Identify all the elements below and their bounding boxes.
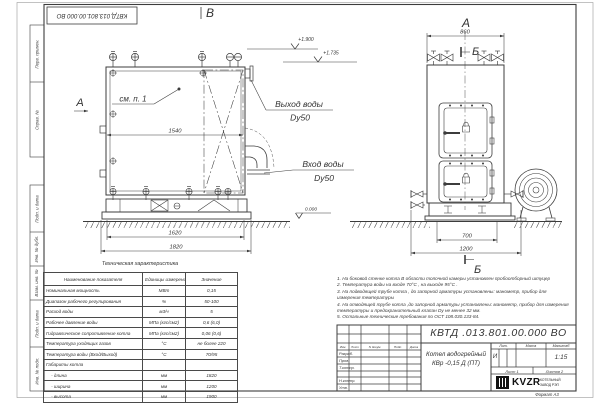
cut-label-bottom: Б: [474, 264, 481, 276]
note-line: 1. На боковой стенке котла В области топ…: [337, 276, 571, 282]
inlet-dn: Dy50: [314, 173, 334, 183]
role-utv: Утв.: [339, 385, 379, 390]
outlet-label: Выход воды: [275, 99, 324, 109]
role-prov: Пров.: [339, 358, 379, 363]
lit-value: И: [491, 354, 499, 360]
tech-table-title: Техническая характеристика: [43, 261, 237, 267]
tech-table-cell: - ширина: [44, 381, 143, 392]
inlet-label: Вход воды: [302, 159, 344, 169]
tech-table-cell: 1820: [186, 370, 238, 381]
col-mass-header: Масса: [516, 344, 546, 348]
rev-header-ndokum: N докум.: [361, 345, 389, 349]
title-block-doc-number: КВТД .013.801.00.000 ВО: [421, 327, 576, 339]
tech-table-cell: 0,06 (0,6): [186, 328, 238, 339]
tech-table-row: Габариты котла: [44, 360, 238, 371]
notes-list: 1. На боковой стенке котла В области топ…: [337, 276, 571, 321]
product-line1: Котел водогрейный: [421, 351, 491, 360]
rev-header-podp: Подп.: [389, 345, 407, 349]
elevation-zero: 0.000: [305, 207, 317, 213]
role-razrab: Разраб.: [339, 351, 379, 356]
tech-table-cell: [143, 360, 186, 371]
tech-table-cell: 1900: [186, 391, 238, 402]
tech-table-header-cell: Единицы измерения: [143, 273, 186, 286]
side-view-label: А: [461, 16, 470, 30]
rev-header-list: Лист: [349, 345, 361, 349]
tech-table-row: Температура уходящих газов°Сне более 220: [44, 338, 238, 349]
tech-table-cell: Температура уходящих газов: [44, 338, 143, 349]
tech-table-cell: мм: [143, 381, 186, 392]
logo-emblem: [496, 376, 509, 389]
tech-table-row: Номинальная мощностьМВт0,15: [44, 286, 238, 297]
outlet-dn: Dy50: [290, 113, 310, 123]
tech-table-cell: м3/ч: [143, 307, 186, 318]
elevation-mid: +1.735: [323, 51, 339, 57]
tech-table-cell: [186, 360, 238, 371]
tech-table-cell: Габариты котла: [44, 360, 143, 371]
tech-table-row: - высотамм1900: [44, 391, 238, 402]
drawing-labels: В А см. п. 1 1540 1620 1820 +1.900 +1.73…: [75, 6, 481, 276]
tech-table-row: - длинамм1820: [44, 370, 238, 381]
tech-table-row: Гидравлическое сопротивление котлаМПа (к…: [44, 328, 238, 339]
tech-table-cell: МПа (кгс/см2): [143, 317, 186, 328]
dim-1820: 1820: [170, 245, 184, 251]
tech-table-cell: МПа (кгс/см2): [143, 328, 186, 339]
tech-table-cell: мм: [143, 391, 186, 402]
col-lit-header: Лит.: [491, 344, 516, 348]
role-tkontr: Т.контр.: [339, 365, 379, 370]
dim-860: 860: [460, 30, 470, 36]
tech-table-cell: - высота: [44, 391, 143, 402]
title-block-product-name: Котел водогрейный КВр -0,15 Д (ПТ): [421, 351, 491, 368]
dim-700: 700: [462, 234, 472, 240]
tech-table-cell: Гидравлическое сопротивление котла: [44, 328, 143, 339]
see-item-label: см. п. 1: [119, 95, 146, 104]
tech-table-cell: 70/95: [186, 349, 238, 360]
note-line: 4. На отводящей трубе котла ,до запорной…: [337, 302, 571, 314]
drawing-sheet: { "stamp_top_left": "КВТД.013.801.00.000…: [0, 0, 600, 400]
dim-1620: 1620: [169, 231, 183, 237]
ground-hatch-side-right: [512, 222, 562, 228]
tech-table-body: Номинальная мощностьМВт0,15Диапазон рабо…: [44, 286, 238, 403]
dim-1200: 1200: [460, 247, 474, 253]
tech-table-cell: Температура воды (Вход/Выход): [44, 349, 143, 360]
tech-table-cell: мм: [143, 370, 186, 381]
tech-table-cell: Диапазон рабочего регулирования: [44, 296, 143, 307]
elevation-top: +1.900: [298, 37, 314, 43]
margin-label-podp-data-2: Подп. и дата: [30, 300, 44, 347]
logo-text: KVZR: [512, 377, 540, 388]
tech-table-header-cell: Наименование показателя: [44, 273, 143, 286]
tech-table-row: Температура воды (Вход/Выход)°С70/95: [44, 349, 238, 360]
margin-label-sprav: Справ. №: [30, 82, 44, 157]
margin-label-vzam-inv: Взам. инв. №: [30, 266, 44, 300]
tech-table-cell: 0,6 (6,0): [186, 317, 238, 328]
tech-table-header-row: Наименование показателяЕдиницы измерения…: [44, 273, 238, 286]
tech-table-cell: 50-100: [186, 296, 238, 307]
margin-label-inv-dubl: Инв. № дубл.: [30, 232, 44, 266]
ground-hatch-front: [83, 222, 290, 228]
tech-table-cell: - длина: [44, 370, 143, 381]
scale-value: 1:15: [546, 354, 576, 361]
tech-table-row: Диапазон рабочего регулирования%50-100: [44, 296, 238, 307]
ground-hatch-side-left: [350, 222, 430, 228]
margin-label-inv-podl: Инв. № подл.: [30, 347, 44, 394]
side-view: [411, 32, 557, 221]
note-line: 5. Остальные технические требования по О…: [337, 314, 571, 320]
product-line2: КВр -0,15 Д (ПТ): [421, 360, 491, 369]
logo-caption-2: ЗАВОД РЭП: [540, 383, 574, 387]
tech-table-cell: 0,15: [186, 286, 238, 297]
top-stamp: КВТД.013.801.00.000 ВО: [47, 7, 137, 24]
note-line: 2. Температура воды на входе 70°С , на в…: [337, 282, 571, 288]
tech-table-cell: Номинальная мощность: [44, 286, 143, 297]
col-scale-header: Масштаб: [546, 344, 576, 348]
tech-table-cell: МВт: [143, 286, 186, 297]
rev-header-data: Дата: [407, 345, 421, 349]
front-view-arrow-label: А: [75, 97, 83, 109]
margin-label-podp-data-1: Подп. и дата: [30, 185, 44, 232]
margin-label-perv-primen: Перв. примен.: [30, 25, 44, 82]
tech-table-cell: Рабочее давление воды: [44, 317, 143, 328]
sheets-cell: Листов 2: [533, 369, 576, 374]
tech-table-cell: 1200: [186, 381, 238, 392]
tech-table-cell: не более 220: [186, 338, 238, 349]
tech-table-header-cell: Значение: [186, 273, 238, 286]
tech-table-row: - ширинамм1200: [44, 381, 238, 392]
tech-table-row: Расход водым3/ч5: [44, 307, 238, 318]
tech-table-cell: %: [143, 296, 186, 307]
format-label: Формат А3: [518, 392, 576, 397]
rev-header-izm: Изм.: [337, 345, 349, 349]
front-view-label: В: [206, 6, 214, 20]
tech-table-cell: °С: [143, 338, 186, 349]
tech-table-cell: 5: [186, 307, 238, 318]
cut-label-top: Б: [472, 46, 479, 58]
tech-table-cell: Расход воды: [44, 307, 143, 318]
role-nkontr: Н.контр.: [339, 378, 379, 383]
dim-1540: 1540: [169, 129, 183, 135]
sheet-cell: Лист 1: [491, 369, 533, 374]
tech-table: Наименование показателяЕдиницы измерения…: [43, 272, 238, 403]
note-line: 3. На подводящей трубе котла , до запорн…: [337, 289, 571, 301]
tech-table-row: Рабочее давление водыМПа (кгс/см2)0,6 (6…: [44, 317, 238, 328]
tech-table-cell: °С: [143, 349, 186, 360]
logo-caption-1: КОТЕЛЬНЫЙ: [540, 378, 574, 382]
